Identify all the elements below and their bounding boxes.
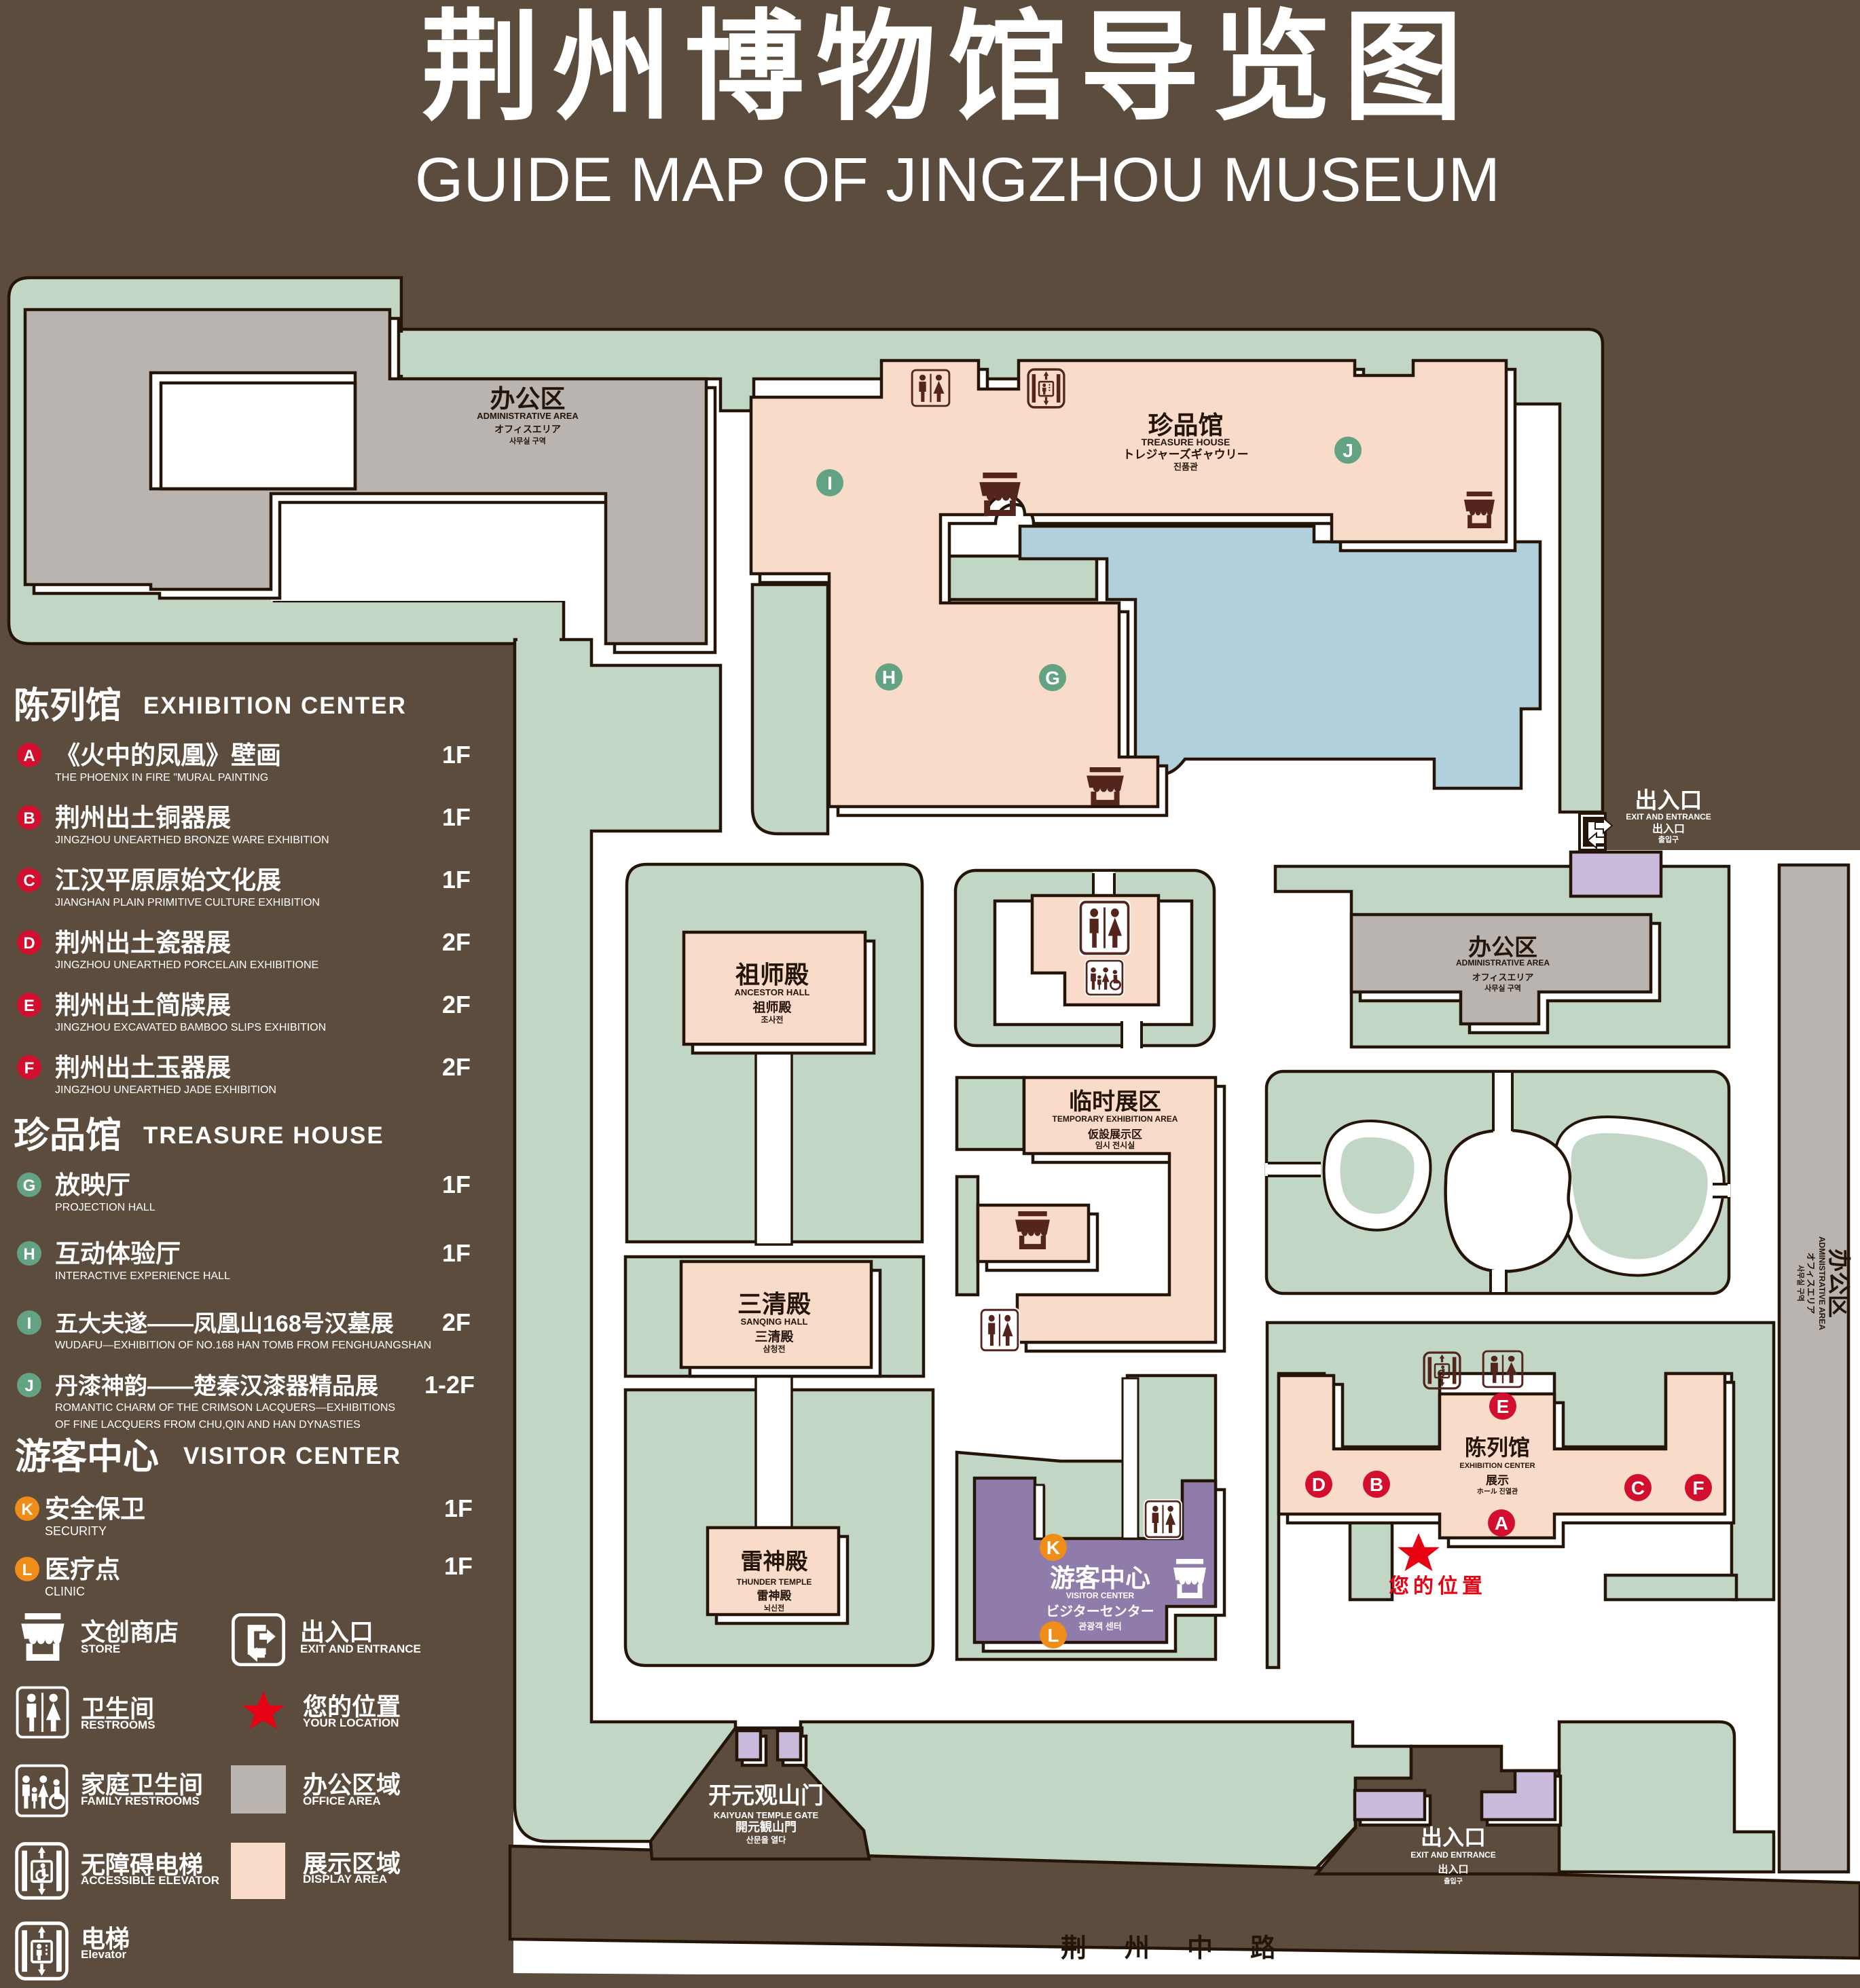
svg-text:荆州出土铜器展: 荆州出土铜器展 xyxy=(55,804,231,832)
svg-text:出入口: 出入口 xyxy=(1421,1825,1486,1849)
svg-text:VISITOR CENTER: VISITOR CENTER xyxy=(183,1443,401,1469)
svg-text:ACCESSIBLE ELEVATOR: ACCESSIBLE ELEVATOR xyxy=(81,1874,219,1887)
svg-text:진품관: 진품관 xyxy=(1173,462,1198,472)
svg-text:사무실 구역: 사무실 구역 xyxy=(1796,1265,1806,1302)
svg-text:JINGZHOU UNEARTHED JADE EXHIBI: JINGZHOU UNEARTHED JADE EXHIBITION xyxy=(55,1084,276,1096)
svg-text:安全保卫: 安全保卫 xyxy=(45,1494,145,1523)
svg-text:JINGZHOU UNEARTHED PORCELAIN E: JINGZHOU UNEARTHED PORCELAIN EXHIBITIONE xyxy=(55,959,318,971)
svg-text:1F: 1F xyxy=(442,1239,471,1267)
svg-text:J: J xyxy=(1343,440,1353,461)
svg-text:2F: 2F xyxy=(442,1308,471,1336)
svg-text:RESTROOMS: RESTROOMS xyxy=(81,1718,156,1731)
svg-text:TREASURE HOUSE: TREASURE HOUSE xyxy=(143,1122,384,1149)
svg-text:荆州出土简牍展: 荆州出土简牍展 xyxy=(55,991,231,1019)
svg-text:《火中的凤凰》壁画: 《火中的凤凰》壁画 xyxy=(55,741,281,769)
svg-text:삼청전: 삼청전 xyxy=(763,1344,785,1354)
svg-text:VISITOR CENTER: VISITOR CENTER xyxy=(1066,1591,1135,1600)
svg-text:1F: 1F xyxy=(442,741,471,769)
svg-text:您的位置: 您的位置 xyxy=(1389,1575,1487,1598)
svg-text:ROMANTIC CHARM OF THE CRIMSON: ROMANTIC CHARM OF THE CRIMSON LACQUERS—E… xyxy=(55,1402,395,1414)
svg-text:KAIYUAN TEMPLE GATE: KAIYUAN TEMPLE GATE xyxy=(714,1810,819,1820)
svg-text:JIANGHAN PLAIN PRIMITIVE CULTU: JIANGHAN PLAIN PRIMITIVE CULTURE EXHIBIT… xyxy=(55,897,320,908)
svg-text:医疗点: 医疗点 xyxy=(45,1556,120,1583)
svg-text:ADMINISTRATIVE AREA: ADMINISTRATIVE AREA xyxy=(477,411,579,421)
svg-text:陈列馆: 陈列馆 xyxy=(14,686,122,726)
svg-text:荆州博物馆导览图: 荆州博物馆导览图 xyxy=(421,1,1475,134)
svg-text:B: B xyxy=(23,809,35,828)
svg-text:K: K xyxy=(1046,1537,1060,1558)
svg-text:Elevator: Elevator xyxy=(81,1948,126,1961)
svg-text:荆州出土玉器展: 荆州出土玉器展 xyxy=(55,1054,231,1082)
svg-text:办公区: 办公区 xyxy=(1825,1249,1851,1318)
svg-text:D: D xyxy=(23,934,35,953)
svg-text:THE PHOENIX IN FIRE "MURAL PAI: THE PHOENIX IN FIRE "MURAL PAINTING xyxy=(55,772,268,784)
svg-text:ADMINISTRATIVE AREA: ADMINISTRATIVE AREA xyxy=(1817,1236,1827,1330)
svg-text:1F: 1F xyxy=(442,803,471,831)
svg-text:임시 전시실: 임시 전시실 xyxy=(1095,1140,1135,1150)
svg-text:出入口: 出入口 xyxy=(1438,1863,1468,1875)
svg-text:뇌신전: 뇌신전 xyxy=(764,1603,784,1613)
svg-text:사무실 구역: 사무실 구역 xyxy=(509,436,546,445)
svg-text:EXIT AND ENTRANCE: EXIT AND ENTRANCE xyxy=(1410,1850,1496,1860)
svg-text:祖师殿: 祖师殿 xyxy=(752,999,792,1015)
svg-text:丹漆神韵——楚秦汉漆器精品展: 丹漆神韵——楚秦汉漆器精品展 xyxy=(55,1374,378,1399)
svg-text:トレジャーズギャウリー: トレジャーズギャウリー xyxy=(1123,447,1248,461)
svg-text:G: G xyxy=(1045,667,1060,688)
svg-text:展示: 展示 xyxy=(1486,1474,1509,1487)
svg-text:출입구: 출입구 xyxy=(1658,834,1679,844)
svg-text:SECURITY: SECURITY xyxy=(45,1524,107,1538)
svg-text:D: D xyxy=(1312,1474,1326,1495)
svg-text:CLINIC: CLINIC xyxy=(45,1585,85,1598)
svg-text:THUNDER TEMPLE: THUNDER TEMPLE xyxy=(737,1577,812,1587)
svg-text:EXIT AND ENTRANCE: EXIT AND ENTRANCE xyxy=(1626,812,1711,822)
svg-text:オフィスエリア: オフィスエリア xyxy=(494,424,561,435)
svg-text:三清殿: 三清殿 xyxy=(737,1290,811,1318)
svg-text:STORE: STORE xyxy=(81,1642,120,1655)
svg-text:K: K xyxy=(21,1501,33,1519)
svg-text:荆州中路: 荆州中路 xyxy=(1061,1934,1313,1963)
svg-text:사무실 구역: 사무실 구역 xyxy=(1484,983,1521,993)
svg-text:放映厅: 放映厅 xyxy=(55,1171,130,1199)
svg-text:YOUR LOCATION: YOUR LOCATION xyxy=(303,1716,399,1729)
svg-text:조사전: 조사전 xyxy=(761,1014,783,1025)
svg-text:2F: 2F xyxy=(442,928,471,956)
svg-text:オフィスエリア: オフィスエリア xyxy=(1472,972,1534,982)
svg-text:1F: 1F xyxy=(444,1552,473,1580)
svg-text:雷神殿: 雷神殿 xyxy=(741,1549,808,1574)
svg-text:1F: 1F xyxy=(442,866,471,894)
svg-text:仮設展示区: 仮設展示区 xyxy=(1087,1128,1142,1141)
svg-text:H: H xyxy=(23,1245,35,1264)
svg-text:C: C xyxy=(1631,1477,1645,1498)
svg-text:游客中心: 游客中心 xyxy=(15,1437,159,1477)
svg-text:出入口: 出入口 xyxy=(1635,788,1702,813)
svg-text:开元观山门: 开元观山门 xyxy=(708,1783,824,1809)
svg-text:H: H xyxy=(882,667,896,688)
svg-text:出入口: 出入口 xyxy=(1652,822,1685,835)
svg-text:관광객 센터: 관광객 센터 xyxy=(1078,1621,1121,1632)
svg-text:出入口: 出入口 xyxy=(300,1618,373,1646)
svg-text:ANCESTOR HALL: ANCESTOR HALL xyxy=(735,987,810,997)
svg-text:OFFICE AREA: OFFICE AREA xyxy=(303,1794,381,1807)
svg-text:互动体验厅: 互动体验厅 xyxy=(55,1240,181,1268)
svg-text:JINGZHOU EXCAVATED BAMBOO SLIP: JINGZHOU EXCAVATED BAMBOO SLIPS EXHIBITI… xyxy=(55,1022,326,1033)
svg-text:游客中心: 游客中心 xyxy=(1050,1564,1150,1592)
svg-text:陈列馆: 陈列馆 xyxy=(1465,1435,1530,1460)
svg-text:WUDAFU—EXHIBITION OF NO.168 HA: WUDAFU—EXHIBITION OF NO.168 HAN TOMB FRO… xyxy=(55,1340,431,1351)
svg-text:B: B xyxy=(1370,1474,1383,1495)
svg-text:办公区: 办公区 xyxy=(1468,935,1537,961)
svg-text:2F: 2F xyxy=(442,991,471,1018)
svg-text:L: L xyxy=(22,1561,33,1579)
svg-text:珍品馆: 珍品馆 xyxy=(1148,411,1224,439)
svg-text:EXHIBITION CENTER: EXHIBITION CENTER xyxy=(1459,1462,1535,1470)
svg-text:1F: 1F xyxy=(444,1494,473,1522)
svg-text:临时展区: 临时展区 xyxy=(1069,1089,1161,1115)
svg-text:F: F xyxy=(24,1059,35,1078)
svg-text:江汉平原原始文化展: 江汉平原原始文化展 xyxy=(55,866,281,894)
svg-text:INTERACTIVE EXPERIENCE HALL: INTERACTIVE EXPERIENCE HALL xyxy=(55,1270,230,1282)
svg-text:EXIT AND ENTRANCE: EXIT AND ENTRANCE xyxy=(300,1642,421,1655)
svg-text:J: J xyxy=(24,1377,33,1395)
svg-text:オフィスエリア: オフィスエリア xyxy=(1806,1253,1816,1314)
svg-text:TREASURE HOUSE: TREASURE HOUSE xyxy=(1142,437,1230,447)
svg-text:DISPLAY AREA: DISPLAY AREA xyxy=(303,1873,387,1885)
svg-text:SANQING HALL: SANQING HALL xyxy=(741,1317,808,1327)
svg-text:FAMILY RESTROOMS: FAMILY RESTROOMS xyxy=(81,1794,200,1807)
svg-text:I: I xyxy=(27,1314,32,1333)
svg-text:EXHIBITION CENTER: EXHIBITION CENTER xyxy=(143,693,407,719)
svg-text:珍品馆: 珍品馆 xyxy=(14,1116,122,1156)
svg-text:G: G xyxy=(23,1177,36,1195)
svg-text:雷神殿: 雷神殿 xyxy=(757,1589,792,1602)
svg-text:三清殿: 三清殿 xyxy=(754,1329,794,1344)
svg-text:1-2F: 1-2F xyxy=(424,1371,475,1399)
svg-text:E: E xyxy=(1497,1396,1510,1417)
svg-text:五大夫遂——凤凰山168号汉墓展: 五大夫遂——凤凰山168号汉墓展 xyxy=(55,1311,394,1337)
svg-text:GUIDE MAP OF JINGZHOU MUSEUM: GUIDE MAP OF JINGZHOU MUSEUM xyxy=(415,145,1500,215)
svg-text:祖师殿: 祖师殿 xyxy=(735,961,809,989)
svg-text:OF FINE LACQUERS FROM CHU,QIN: OF FINE LACQUERS FROM CHU,QIN AND HAN DY… xyxy=(55,1419,361,1431)
svg-text:開元観山門: 開元観山門 xyxy=(735,1820,797,1834)
svg-text:荆州出土瓷器展: 荆州出土瓷器展 xyxy=(55,929,231,957)
svg-text:办公区: 办公区 xyxy=(490,385,566,413)
svg-text:L: L xyxy=(1047,1625,1059,1646)
svg-text:1F: 1F xyxy=(442,1171,471,1198)
svg-text:F: F xyxy=(1692,1477,1704,1498)
svg-text:PROJECTION HALL: PROJECTION HALL xyxy=(55,1202,156,1213)
svg-text:I: I xyxy=(827,473,833,494)
svg-text:A: A xyxy=(23,747,35,765)
svg-text:C: C xyxy=(23,872,35,890)
svg-text:출입구: 출입구 xyxy=(1444,1877,1463,1885)
svg-text:JINGZHOU UNEARTHED BRONZE WARE: JINGZHOU UNEARTHED BRONZE WARE EXHIBITIO… xyxy=(55,834,329,846)
svg-text:ビジターセンター: ビジターセンター xyxy=(1046,1604,1154,1619)
svg-text:ホール 진열관: ホール 진열관 xyxy=(1477,1487,1518,1496)
svg-text:A: A xyxy=(1495,1513,1508,1534)
svg-text:ADMINISTRATIVE AREA: ADMINISTRATIVE AREA xyxy=(1456,958,1550,968)
svg-text:TEMPORARY EXHIBITION AREA: TEMPORARY EXHIBITION AREA xyxy=(1053,1114,1178,1124)
svg-text:산문을 열다: 산문을 열다 xyxy=(746,1835,786,1845)
svg-text:2F: 2F xyxy=(442,1053,471,1081)
svg-text:E: E xyxy=(24,997,35,1015)
svg-text:文创商店: 文创商店 xyxy=(81,1618,179,1646)
